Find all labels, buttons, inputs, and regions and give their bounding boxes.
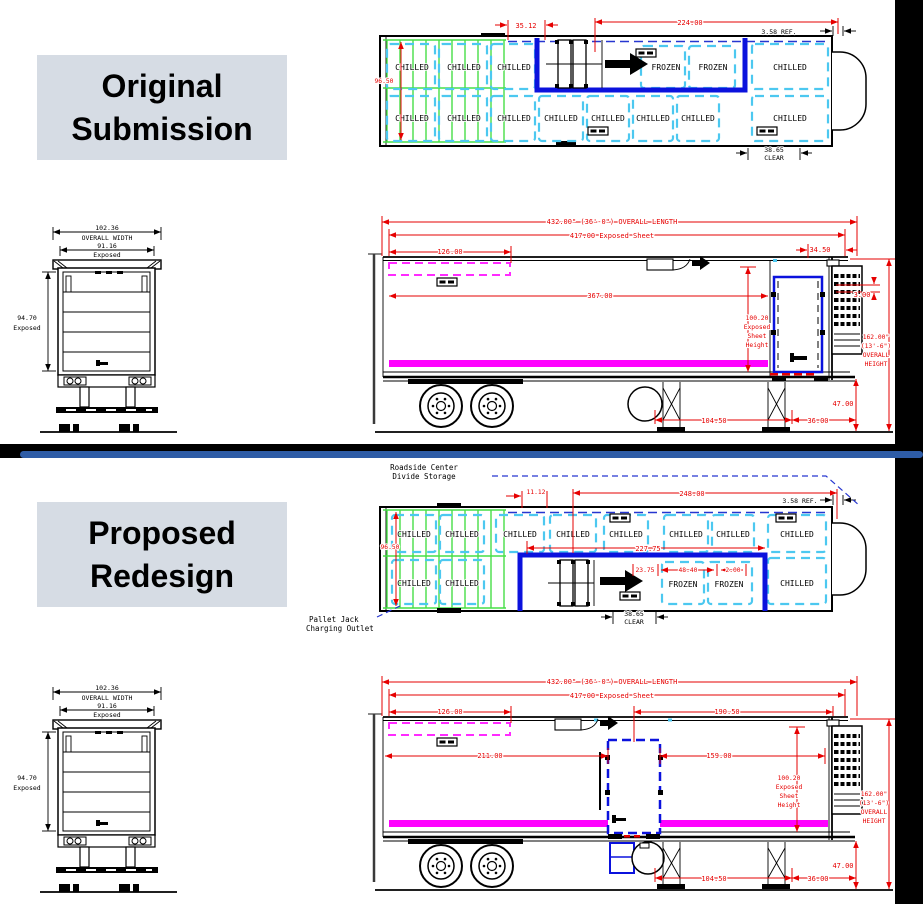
charging-outlet-icon xyxy=(610,514,630,522)
landing-gear xyxy=(762,382,790,432)
roof-door-swing-icon xyxy=(555,716,618,730)
zone-label: CHILLED xyxy=(669,530,703,539)
front-frozen-door xyxy=(771,277,825,372)
zone-label: CHILLED xyxy=(681,114,715,123)
dim-text: OVERALL xyxy=(861,809,888,816)
original-side-view: 432.00" (36'-0") OVERALL LENGTH 417.00 E… xyxy=(368,216,895,432)
zone-label: CHILLED xyxy=(395,63,429,72)
zone-label: CHILLED xyxy=(609,530,643,539)
title-line: Redesign xyxy=(90,555,234,597)
dim-text: 367.00 xyxy=(587,292,612,300)
charging-outlet-icon xyxy=(588,127,608,135)
original-rear-view: 102.36 OVERALL WIDTH 91.16 Exposed 94.70… xyxy=(13,224,177,432)
original-plan-view: CHILLED CHILLED CHILLED FROZEN FROZEN CH… xyxy=(375,18,866,162)
dim-text: 35.12 xyxy=(515,22,536,30)
dim-text: 159.00 xyxy=(706,752,731,760)
zone-label: FROZEN xyxy=(669,580,698,589)
dim-text: CLEAR xyxy=(624,618,644,626)
dim-text: 417.00 Exposed Sheet xyxy=(570,232,654,240)
wheel xyxy=(471,385,513,427)
dim-text: 102.36 xyxy=(95,684,119,692)
dim-text: 36.00 xyxy=(807,875,828,883)
dim-text: 248.00 xyxy=(679,490,704,498)
charging-outlet-icon xyxy=(636,49,656,57)
zone-label: CHILLED xyxy=(773,114,807,123)
dim-text: 11.12 xyxy=(527,489,546,496)
zone-label: CHILLED xyxy=(591,114,625,123)
dim-text: OVERALL WIDTH xyxy=(82,234,133,242)
dim-text: Sheet xyxy=(748,333,767,340)
zone-label: CHILLED xyxy=(397,530,431,539)
dim-text: 104.50 xyxy=(701,875,726,883)
original-submission-title: Original Submission xyxy=(37,55,287,160)
dim-text: 3.58 REF. xyxy=(782,497,817,505)
dim-text: 190.50 xyxy=(714,708,739,716)
title-line: Original xyxy=(102,65,223,107)
storage-zone-dashed xyxy=(389,723,510,735)
zone-label: CHILLED xyxy=(636,114,670,123)
proposed-plan-view: CHILLED CHILLED CHILLED CHILLED CHILLED … xyxy=(306,463,866,633)
dim-text: Exposed xyxy=(93,251,120,259)
dim-text: Exposed xyxy=(13,784,40,792)
roof-door-swing-icon xyxy=(647,256,710,270)
title-line: Proposed xyxy=(88,512,236,554)
dim-text: (13'-6") xyxy=(859,800,889,807)
floor-stripe xyxy=(660,820,828,827)
dim-text: 3.58 REF. xyxy=(761,28,796,36)
annotation-text: Charging Outlet xyxy=(306,624,374,633)
floor-stripe xyxy=(389,820,608,827)
title-line: Submission xyxy=(71,108,252,150)
dim-text: HEIGHT xyxy=(863,818,886,825)
dim-text: 23.75 xyxy=(636,567,655,574)
dim-text: 48.40 xyxy=(679,567,698,574)
dim-text: 162.00" xyxy=(863,334,890,341)
dim-text: 38.65 xyxy=(624,610,644,618)
suspension xyxy=(408,839,523,844)
dim-text: Exposed xyxy=(13,324,40,332)
rear-door-swing-shape xyxy=(832,52,866,130)
reefer-unit xyxy=(827,260,862,354)
dim-text: 417.00 Exposed Sheet xyxy=(570,692,654,700)
dim-text: 432.00" (36'-0") OVERALL LENGTH xyxy=(547,218,678,226)
dim-text: 432.00" (36'-0") OVERALL LENGTH xyxy=(547,678,678,686)
dim-text: 91.16 xyxy=(97,242,117,250)
wheel xyxy=(420,845,462,887)
dim-text: 38.65 xyxy=(764,146,784,154)
dim-text: Exposed xyxy=(744,324,771,331)
zone-label: FROZEN xyxy=(652,63,681,72)
dim-text: 94.70 xyxy=(17,314,37,322)
zone-label: CHILLED xyxy=(780,579,814,588)
dim-text: OVERALL xyxy=(863,352,890,359)
dim-text: 2.00 xyxy=(725,567,740,574)
charging-outlet-icon xyxy=(776,514,796,522)
zone-label: FROZEN xyxy=(699,63,728,72)
zone-label: FROZEN xyxy=(715,580,744,589)
charging-outlet-icon xyxy=(757,127,777,135)
dim-text: 211.00 xyxy=(477,752,502,760)
mid-frozen-compartment xyxy=(600,740,663,833)
dim-text: 47.00 xyxy=(832,400,853,408)
charging-outlet-icon xyxy=(437,738,457,746)
wheel xyxy=(471,845,513,887)
annotation-text: Pallet Jack xyxy=(309,615,359,624)
zone-label: CHILLED xyxy=(497,114,531,123)
dim-text: 91.16 xyxy=(97,702,117,710)
dim-text: CLEAR xyxy=(764,154,784,162)
section-divider-accent xyxy=(20,451,923,458)
dim-text: 100.20 xyxy=(778,775,801,782)
dim-text: 96.50 xyxy=(375,78,394,85)
floor-stripe xyxy=(389,360,768,367)
dim-text: 3.00 xyxy=(854,291,871,299)
zone-label: CHILLED xyxy=(503,530,537,539)
dim-text: Exposed xyxy=(93,711,120,719)
dim-text: 100.20 xyxy=(746,315,769,322)
dim-text: 227.75 xyxy=(635,545,660,553)
annotation-text: Roadside Center xyxy=(390,463,458,472)
dim-text: Sheet xyxy=(780,793,799,800)
suspension xyxy=(408,379,523,384)
dim-text: Height xyxy=(746,342,769,349)
proposed-side-view: 432.00" (36'-0") OVERALL LENGTH 417.00 E… xyxy=(368,676,895,890)
fuel-tank xyxy=(628,387,662,421)
dim-text: 96.50 xyxy=(381,544,400,551)
dim-text: 94.70 xyxy=(17,774,37,782)
zone-label: CHILLED xyxy=(773,63,807,72)
zone-label: CHILLED xyxy=(447,63,481,72)
zone-label: CHILLED xyxy=(780,530,814,539)
dim-text: 102.36 xyxy=(95,224,119,232)
dim-text: 126.00 xyxy=(437,708,462,716)
zone-label: CHILLED xyxy=(445,579,479,588)
dim-text: 126.00 xyxy=(437,248,462,256)
dim-text: OVERALL WIDTH xyxy=(82,694,133,702)
zone-label: CHILLED xyxy=(544,114,578,123)
dim-text: 224.00 xyxy=(677,19,702,27)
proposed-rear-view: 102.36 OVERALL WIDTH 91.16 Exposed 94.70… xyxy=(13,684,177,892)
zone-label: CHILLED xyxy=(447,114,481,123)
zone-label: CHILLED xyxy=(445,530,479,539)
annotation-text: Divide Storage xyxy=(392,472,456,481)
dim-text: Height xyxy=(778,802,801,809)
dim-text: 36.00 xyxy=(807,417,828,425)
landing-gear xyxy=(762,842,790,889)
rear-door-swing-shape xyxy=(832,523,866,595)
zone-label: CHILLED xyxy=(397,579,431,588)
reefer-unit xyxy=(827,720,862,814)
zone-label: CHILLED xyxy=(497,63,531,72)
dim-text: (13'-6") xyxy=(861,343,891,350)
dim-text: 104.50 xyxy=(701,417,726,425)
dim-text: Exposed xyxy=(776,784,803,791)
dim-text: 34.50 xyxy=(809,246,830,254)
charging-outlet-icon xyxy=(437,278,457,286)
dim-text: HEIGHT xyxy=(865,361,888,368)
dim-text: 162.00" xyxy=(861,791,888,798)
dim-text: 47.00 xyxy=(832,862,853,870)
wheel xyxy=(420,385,462,427)
zone-label: CHILLED xyxy=(716,530,750,539)
proposed-redesign-title: Proposed Redesign xyxy=(37,502,287,607)
underslung-equipment xyxy=(610,842,664,874)
zone-label: CHILLED xyxy=(395,114,429,123)
charging-outlet-icon xyxy=(620,592,640,600)
storage-zone-dashed xyxy=(389,263,510,275)
